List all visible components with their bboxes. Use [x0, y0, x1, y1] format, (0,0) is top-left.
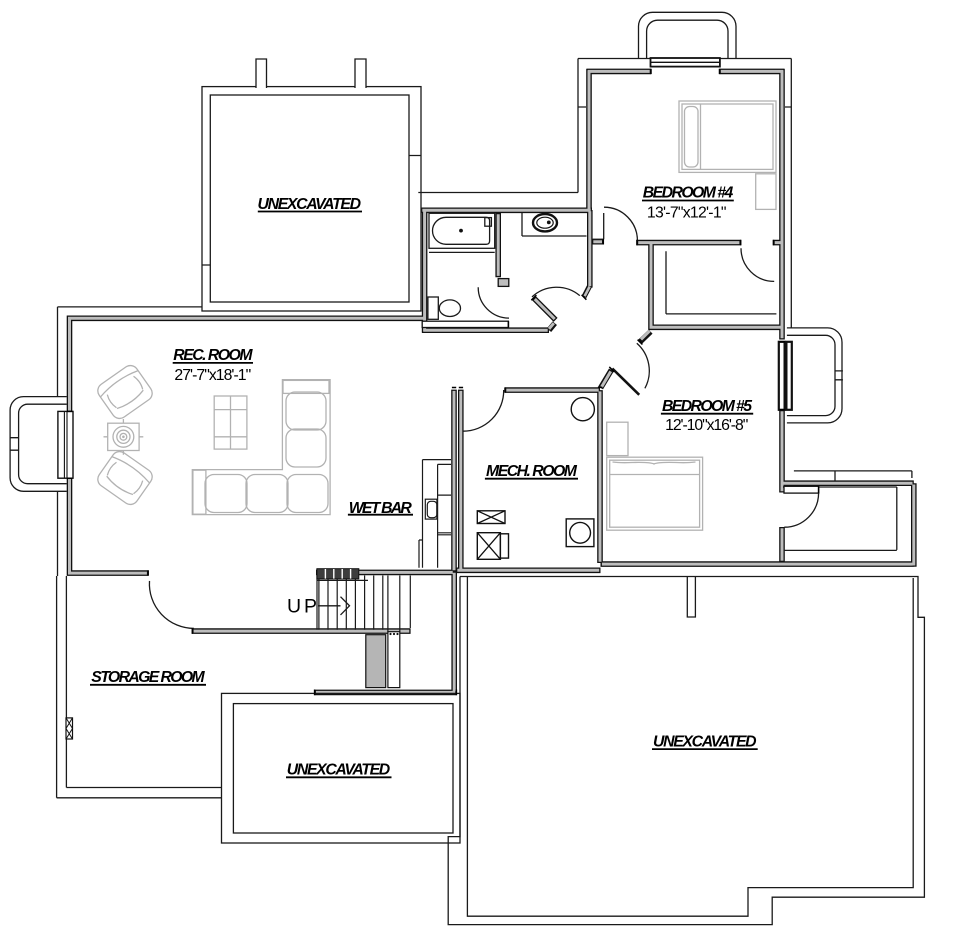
svg-text:MECH. ROOM: MECH. ROOM: [486, 463, 578, 480]
svg-text:UNEXCAVATED: UNEXCAVATED: [653, 733, 757, 750]
svg-text:UNEXCAVATED: UNEXCAVATED: [258, 196, 362, 213]
svg-text:13'-7"x12'-1": 13'-7"x12'-1": [647, 204, 727, 221]
svg-text:STORAGE ROOM: STORAGE ROOM: [91, 669, 205, 686]
svg-text:27'-7"x18'-1": 27'-7"x18'-1": [174, 367, 251, 384]
svg-text:UNEXCAVATED: UNEXCAVATED: [287, 762, 390, 779]
svg-text:BEDROOM #5: BEDROOM #5: [662, 398, 752, 415]
svg-text:12'-10"x16'-8": 12'-10"x16'-8": [665, 417, 748, 434]
svg-text:REC. ROOM: REC. ROOM: [173, 347, 253, 364]
svg-text:BEDROOM #4: BEDROOM #4: [643, 185, 734, 202]
